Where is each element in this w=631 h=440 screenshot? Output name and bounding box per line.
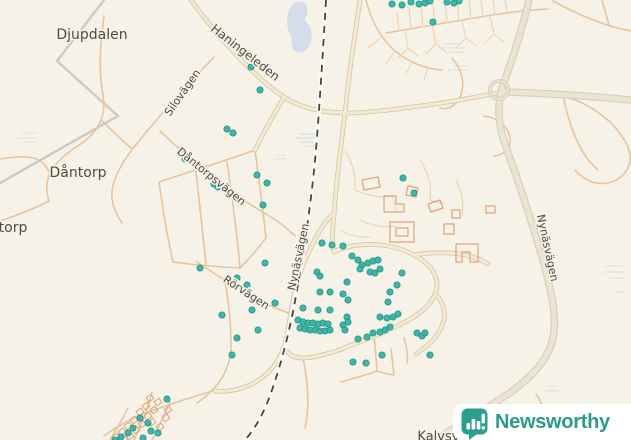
poi-dot[interactable] <box>456 0 462 4</box>
poi-dot[interactable] <box>272 300 278 306</box>
poi-dot[interactable] <box>340 243 346 249</box>
poi-dot[interactable] <box>416 1 422 7</box>
poi-dot[interactable] <box>411 190 417 196</box>
poi-dot[interactable] <box>399 270 405 276</box>
poi-dot[interactable] <box>197 265 203 271</box>
newsworthy-logo[interactable]: Newsworthy <box>453 404 631 440</box>
poi-dot[interactable] <box>375 257 381 263</box>
poi-dot[interactable] <box>325 321 331 327</box>
poi-dot[interactable] <box>379 352 385 358</box>
poi-dot[interactable] <box>349 253 355 259</box>
poi-dot[interactable] <box>224 126 230 132</box>
poi-dot[interactable] <box>408 0 414 5</box>
poi-dot[interactable] <box>357 266 363 272</box>
poi-dot[interactable] <box>422 330 428 336</box>
poi-dot[interactable] <box>327 289 333 295</box>
newsworthy-chart-icon <box>461 408 488 440</box>
poi-dot[interactable] <box>130 425 136 431</box>
poi-dot[interactable] <box>319 240 325 246</box>
poi-dot[interactable] <box>230 130 236 136</box>
poi-dot[interactable] <box>342 327 348 333</box>
poi-dot[interactable] <box>317 273 323 279</box>
poi-dot[interactable] <box>260 202 266 208</box>
place-label: torp <box>0 220 27 236</box>
poi-dot[interactable] <box>385 299 391 305</box>
poi-dot[interactable] <box>229 352 235 358</box>
poi-dot[interactable] <box>145 420 151 426</box>
poi-dot[interactable] <box>315 307 321 313</box>
poi-dot[interactable] <box>427 0 433 4</box>
poi-dot[interactable] <box>155 430 161 436</box>
poi-dot[interactable] <box>355 336 361 342</box>
poi-dot[interactable] <box>377 266 383 272</box>
poi-dot[interactable] <box>427 352 433 358</box>
poi-dot[interactable] <box>249 307 255 313</box>
poi-dot[interactable] <box>430 19 436 25</box>
map-canvas[interactable]: DjupdalenDåntorptorpKalvsvikHaningeleden… <box>0 0 631 440</box>
poi-dot[interactable] <box>400 175 406 181</box>
poi-dot[interactable] <box>329 242 335 248</box>
poi-dot[interactable] <box>345 297 351 303</box>
poi-dot[interactable] <box>387 289 393 295</box>
poi-dot[interactable] <box>394 282 400 288</box>
poi-dot[interactable] <box>340 291 346 297</box>
poi-dot[interactable] <box>377 314 383 320</box>
poi-dot[interactable] <box>364 334 370 340</box>
poi-dot[interactable] <box>399 2 405 8</box>
poi-dot[interactable] <box>148 428 154 434</box>
place-label: Dåntorp <box>50 164 107 181</box>
poi-dot[interactable] <box>219 312 225 318</box>
poi-dot[interactable] <box>327 307 333 313</box>
poi-dot[interactable] <box>389 1 395 7</box>
poi-dot[interactable] <box>264 180 270 186</box>
poi-dot[interactable] <box>140 435 146 440</box>
poi-dot[interactable] <box>317 289 323 295</box>
poi-dot[interactable] <box>384 315 390 321</box>
newsworthy-logo-text: Newsworthy <box>495 412 610 432</box>
poi-dot[interactable] <box>125 430 131 436</box>
poi-dot[interactable] <box>118 434 124 440</box>
poi-dot[interactable] <box>255 327 261 333</box>
poi-dot[interactable] <box>164 396 170 402</box>
poi-dot[interactable] <box>395 311 401 317</box>
poi-dot[interactable] <box>444 0 450 5</box>
poi-dot[interactable] <box>257 87 263 93</box>
poi-dot[interactable] <box>377 329 383 335</box>
poi-dot[interactable] <box>370 330 376 336</box>
place-label: Djupdalen <box>56 27 127 43</box>
poi-dot[interactable] <box>350 359 356 365</box>
poi-dot[interactable] <box>387 324 393 330</box>
poi-dot[interactable] <box>262 260 268 266</box>
poi-dot[interactable] <box>254 172 260 178</box>
poi-dot[interactable] <box>344 279 350 285</box>
map-viewport[interactable]: DjupdalenDåntorptorpKalvsvikHaningeleden… <box>0 0 631 440</box>
poi-dot[interactable] <box>300 305 306 311</box>
poi-dot[interactable] <box>137 415 143 421</box>
poi-dot[interactable] <box>234 335 240 341</box>
poi-dot[interactable] <box>363 360 369 366</box>
poi-dot[interactable] <box>327 327 333 333</box>
